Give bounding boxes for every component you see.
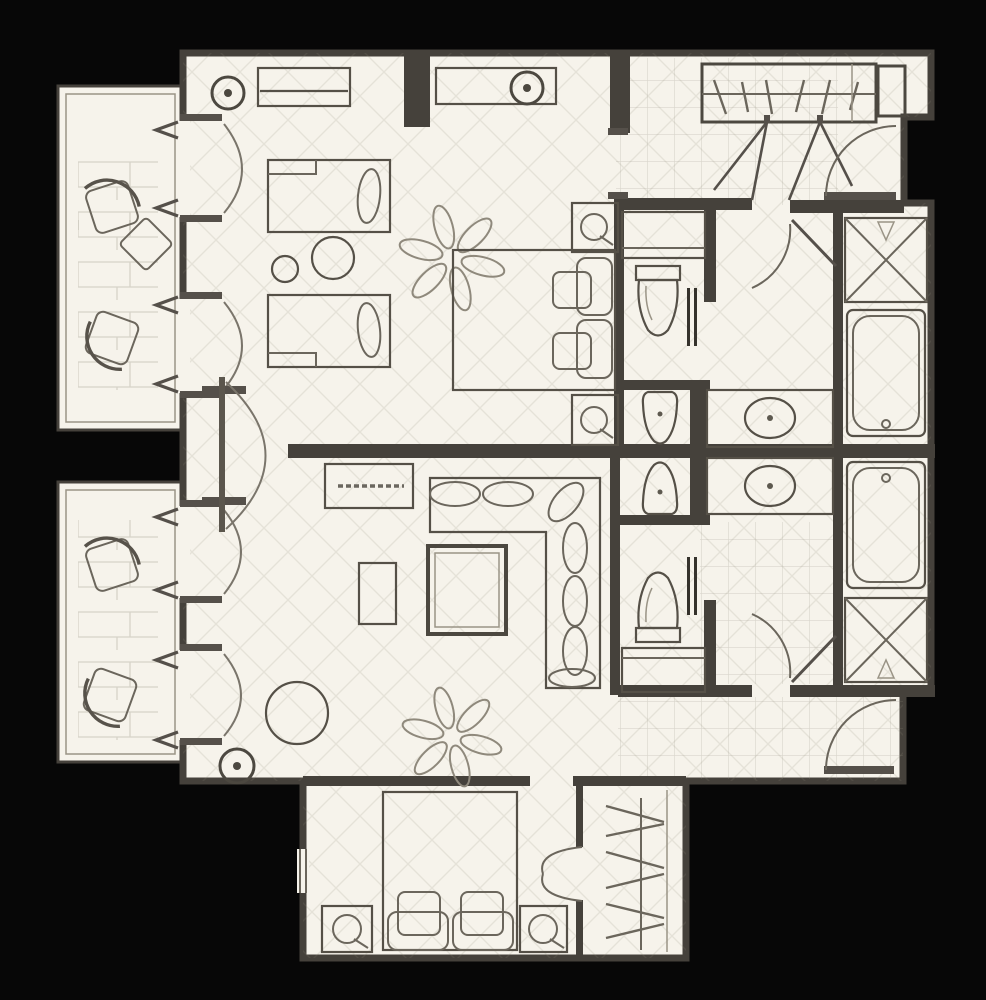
wall-counter1-stub bbox=[690, 387, 706, 447]
wall-closet2-left-a bbox=[576, 786, 583, 847]
door-knob bbox=[817, 115, 823, 123]
wall-living-right bbox=[610, 458, 620, 695]
door-knob bbox=[764, 115, 770, 123]
door-jamb bbox=[608, 192, 628, 199]
door-leaf bbox=[824, 192, 896, 200]
balcony-2 bbox=[58, 482, 183, 762]
pivot-door-leaf bbox=[219, 377, 225, 532]
wall-bath2-wet bbox=[833, 458, 843, 690]
door-jamb bbox=[608, 128, 628, 135]
wall-bath2-bottom-right bbox=[790, 685, 935, 697]
wall-bath1-top-right bbox=[790, 200, 904, 213]
floor-plan bbox=[0, 0, 986, 1000]
wall-bath1-wet bbox=[833, 210, 843, 450]
entry-tile-floor bbox=[616, 58, 838, 205]
balcony-1 bbox=[58, 86, 183, 430]
wall-pier bbox=[404, 50, 430, 127]
wall-entry-stub bbox=[610, 50, 630, 133]
wall-counter2-stub bbox=[690, 458, 706, 518]
balcony-tile-floor bbox=[78, 520, 158, 740]
wall-bath1-top-left bbox=[614, 198, 752, 210]
window bbox=[297, 849, 309, 893]
wall-closet2-top bbox=[573, 776, 686, 786]
wall-bedroom2-top bbox=[303, 776, 530, 786]
floor-plan-canvas bbox=[0, 0, 986, 1000]
door-leaf bbox=[824, 766, 894, 774]
wall-closet2-left-b bbox=[576, 900, 583, 956]
